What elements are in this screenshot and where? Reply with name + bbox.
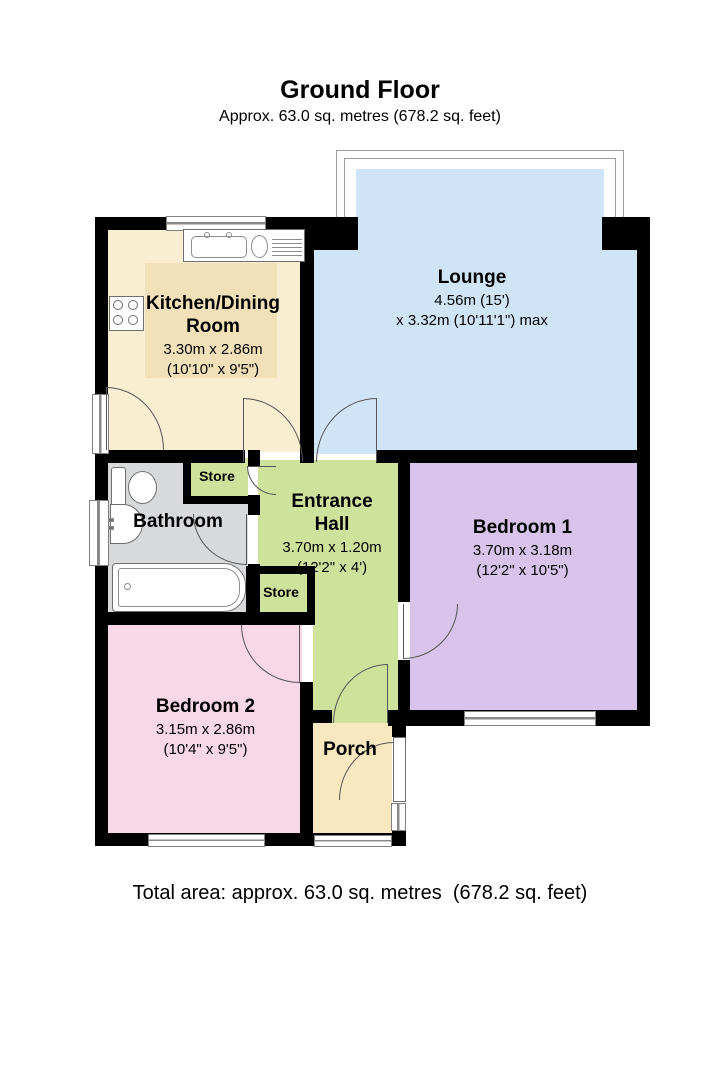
wall-porch-top-left — [311, 710, 332, 723]
kitchen-name: Kitchen/Dining Room — [138, 292, 288, 338]
hob-burner — [113, 315, 123, 325]
window-porch-right — [391, 803, 406, 831]
toilet-cistern — [111, 467, 126, 507]
lounge-dim-imperial: x 3.32m (10'11'1") max — [342, 311, 602, 331]
kitchen-sink-bowl — [251, 235, 268, 258]
hall-name: Entrance Hall — [277, 490, 387, 536]
kitchen-drainer — [272, 236, 302, 257]
hall-dim-metric: 3.70m x 1.20m — [252, 538, 412, 558]
bedroom1-name: Bedroom 1 — [425, 516, 620, 539]
toilet-bowl — [128, 471, 157, 504]
hall-dims: 3.70m x 1.20m (12'2" x 4') — [252, 538, 412, 578]
window-porch-bottom — [314, 835, 392, 847]
bedroom2-dims: 3.15m x 2.86m (10'4" x 9'5") — [108, 720, 303, 760]
hob-burner — [113, 300, 123, 310]
window-bedroom2-bottom — [148, 834, 265, 847]
kitchen-sink-tap — [204, 232, 210, 238]
bedroom2-dim-imperial: (10'4" x 9'5") — [108, 740, 303, 760]
bathtub-inner — [118, 568, 240, 607]
kitchen-dim-imperial: (10'10" x 9'5") — [123, 360, 303, 380]
porch-label: Porch — [308, 738, 392, 761]
window-bathroom-left — [89, 500, 109, 566]
store-bottom-label: Store — [250, 584, 312, 600]
lounge-name: Lounge — [342, 266, 602, 289]
wall-kitchen-bottom — [95, 450, 245, 463]
page-subtitle: Approx. 63.0 sq. metres (678.2 sq. feet) — [0, 108, 720, 126]
bathroom-label: Bathroom — [108, 510, 248, 533]
kitchen-label: Kitchen/Dining Room 3.30m x 2.86m (10'10… — [123, 292, 303, 380]
hall-dim-imperial: (12'2" x 4') — [252, 558, 412, 578]
bedroom1-label: Bedroom 1 3.70m x 3.18m (12'2" x 10'5") — [425, 516, 620, 581]
bathroom-name: Bathroom — [108, 510, 248, 533]
kitchen-sink — [191, 236, 247, 258]
floorplan-page: { "title": { "heading": "Ground Floor", … — [0, 0, 720, 1080]
bedroom1-dims: 3.70m x 3.18m (12'2" x 10'5") — [425, 541, 620, 581]
wall-store-top-bottom — [183, 496, 256, 504]
bedroom1-floor — [410, 463, 637, 710]
lounge-dims: 4.56m (15') x 3.32m (10'11'1") max — [342, 291, 602, 331]
total-area-text: Total area: approx. 63.0 sq. metres (678… — [0, 882, 720, 905]
wall-lounge-bottom — [376, 450, 650, 463]
wall-right-exterior — [637, 217, 650, 726]
window-bedroom1-bottom — [464, 711, 596, 726]
hall-label: Entrance Hall 3.70m x 1.20m (12'2" x 4') — [252, 490, 412, 578]
lounge-label: Lounge 4.56m (15') x 3.32m (10'11'1") ma… — [342, 266, 602, 331]
bedroom1-dim-metric: 3.70m x 3.18m — [425, 541, 620, 561]
kitchen-sink-tap — [226, 232, 232, 238]
bedroom2-dim-metric: 3.15m x 2.86m — [108, 720, 303, 740]
bedroom2-name: Bedroom 2 — [108, 695, 303, 718]
wall-hall-bedroom1-lower — [398, 660, 410, 710]
kitchen-dims: 3.30m x 2.86m (10'10" x 9'5") — [123, 340, 303, 380]
lounge-dim-metric: 4.56m (15') — [342, 291, 602, 311]
wall-porch-right-a — [392, 723, 406, 737]
porch-name: Porch — [308, 738, 392, 761]
kitchen-dim-metric: 3.30m x 2.86m — [123, 340, 303, 360]
wall-bath-bedroom2 — [95, 612, 315, 625]
bathtub-tap — [124, 583, 131, 590]
bedroom1-dim-imperial: (12'2" x 10'5") — [425, 561, 620, 581]
bedroom2-label: Bedroom 2 3.15m x 2.86m (10'4" x 9'5") — [108, 695, 303, 760]
bay-window-floor — [356, 169, 604, 254]
page-title: Ground Floor — [0, 76, 720, 105]
store-top-label: Store — [186, 468, 248, 484]
entrance-door-leaf — [393, 737, 406, 802]
